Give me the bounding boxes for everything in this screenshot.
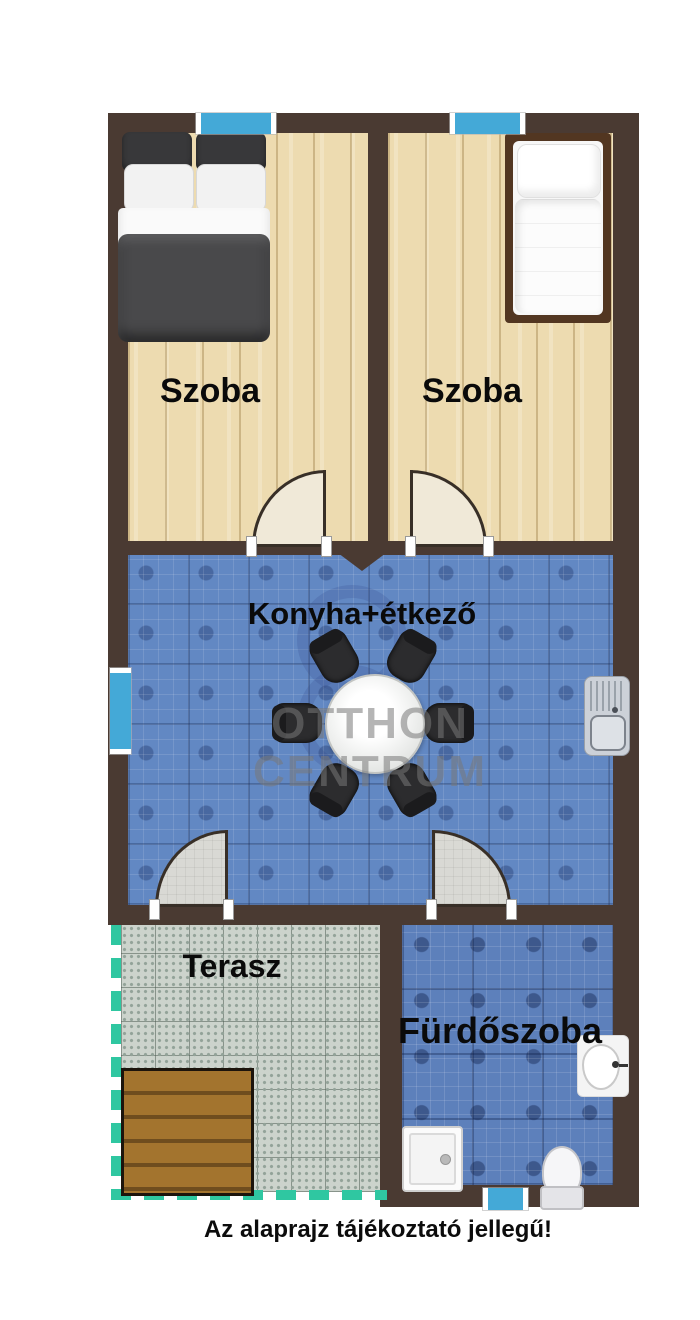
double-bed	[118, 130, 270, 342]
bathroom-label: Fürdőszoba	[398, 1010, 602, 1052]
wall-terrace-bath-divider	[380, 925, 402, 1207]
bed-duvet-dark	[118, 234, 270, 342]
watermark-line2: CENTRUM	[180, 748, 560, 796]
wall-bedrooms-kitchen	[108, 541, 633, 555]
toilet	[540, 1146, 580, 1208]
watermark-text: OTTHON CENTRUM	[180, 700, 560, 796]
single-bed	[505, 133, 611, 323]
terrace-label: Terasz	[182, 948, 281, 985]
floor-plan: OTTHON CENTRUM Szoba Szoba Konyha+étkező…	[0, 0, 700, 1320]
watermark-line1: OTTHON	[180, 700, 560, 748]
bedroom1-window	[196, 113, 276, 134]
door-bracket	[223, 899, 234, 920]
door-bracket	[149, 899, 160, 920]
bed-pillow-white	[517, 144, 601, 198]
toilet-tank	[540, 1186, 584, 1210]
bed-duvet-white	[515, 199, 601, 313]
faucet-handle-icon	[619, 1064, 628, 1067]
door-bracket	[246, 536, 257, 557]
shower-tray	[402, 1126, 463, 1192]
bedroom2-window	[450, 113, 525, 134]
terrace-border-left	[111, 925, 121, 1198]
sink-drainboard	[590, 681, 624, 711]
door-bracket	[321, 536, 332, 557]
bathroom-window	[483, 1188, 528, 1210]
faucet-icon	[612, 707, 618, 713]
door-bracket	[506, 899, 517, 920]
door-bracket	[426, 899, 437, 920]
wall-kitchen-bottom	[108, 905, 633, 925]
shower-drain-icon	[440, 1154, 451, 1165]
door-bracket	[483, 536, 494, 557]
bed-pillow-white	[196, 164, 266, 212]
wood-deck	[121, 1068, 254, 1196]
bed-pillow-white	[124, 164, 194, 212]
kitchen-window	[110, 668, 131, 754]
bedroom2-label: Szoba	[422, 372, 522, 411]
faucet-icon	[612, 1061, 619, 1068]
sink-bowl	[590, 715, 626, 751]
bedroom1-label: Szoba	[160, 372, 260, 411]
kitchen-sink	[584, 676, 630, 756]
wall-bedroom-divider	[368, 113, 388, 555]
disclaimer-note: Az alaprajz tájékoztató jellegű!	[204, 1216, 552, 1244]
kitchen-label: Konyha+étkező	[248, 596, 476, 632]
door-bracket	[405, 536, 416, 557]
